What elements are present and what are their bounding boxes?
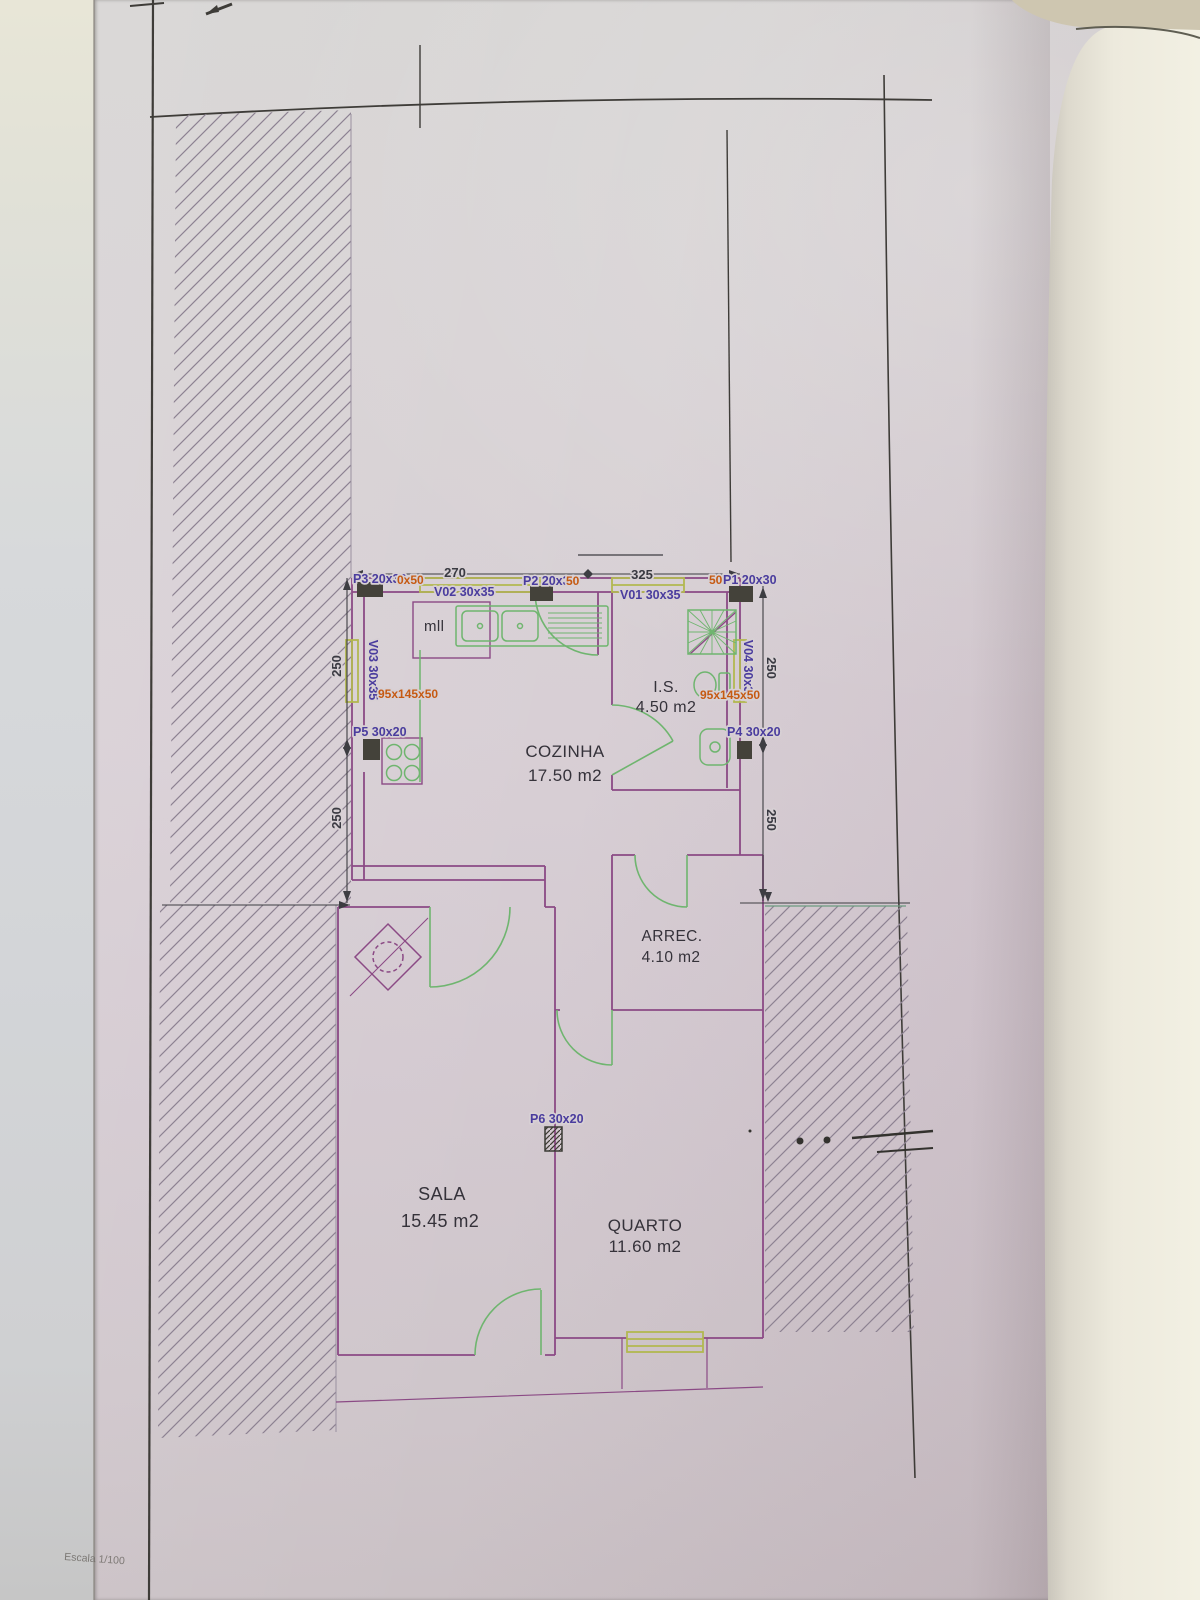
pillar-p1 [729,586,753,602]
floor-plan-drawing: P3 20x30 0x50 270 P2 20x30 50 325 50 P1 … [0,0,1200,1600]
dim-250-left-upper: 250 [329,655,344,677]
room-area-quarto: 11.60 m2 [609,1237,682,1256]
dim-270: 270 [444,565,466,580]
room-area-arrec: 4.10 m2 [642,949,701,966]
pillar-p6 [545,1127,562,1151]
hatch-right [765,906,914,1332]
kitchen-sink [456,606,608,646]
pillar-p2 [530,586,553,601]
top-edge-mark [130,3,164,6]
label-p6: P6 30x20 [530,1112,584,1126]
pillar-p5 [363,739,380,760]
label-p4: P4 30x20 [727,725,781,739]
pillar-p4 [737,741,752,759]
sala-walls [338,907,555,1355]
door-arc-sala [430,907,510,987]
dim-250-right-lower: 250 [764,809,779,831]
left-border-line [149,0,153,1600]
door-arc-quarto [557,1010,612,1065]
fireplace [350,918,428,996]
walls [336,578,763,1402]
room-area-is: 4.50 m2 [636,699,697,716]
label-v02: V02 30x35 [434,585,495,599]
label-p3-extra: 0x50 [397,573,424,587]
window-quarto [627,1332,703,1352]
dim-250-right-upper: 250 [764,657,779,679]
hatch-left-lower [158,905,336,1438]
page-curl [970,0,1200,1600]
door-arc-arrec [635,855,687,907]
room-label-cozinha: COZINHA [525,742,605,761]
room-area-cozinha: 17.50 m2 [528,766,602,785]
dim-250-left-lower: 250 [329,807,344,829]
label-p1-extra: 50 [709,573,723,587]
room-label-arrec: ARREC. [642,928,703,945]
mid-boundary-line [727,130,731,562]
room-label-sala: SALA [418,1184,466,1204]
dim-325: 325 [631,567,653,582]
label-p2-extra: 50 [566,574,580,588]
label-p5: P5 30x20 [353,725,407,739]
scale-note: Escala 1/100 [64,1551,126,1567]
label-v01: V01 30x35 [620,588,681,602]
dimension-arrows [339,569,772,909]
room-area-sala: 15.45 m2 [401,1211,479,1231]
photo-canvas: P3 20x30 0x50 270 P2 20x30 50 325 50 P1 … [0,0,1200,1600]
stove-burners [387,745,420,781]
label-counter-left: 95x145x50 [378,687,438,701]
kitchen-bottom-walls [352,866,545,907]
room-label-quarto: QUARTO [608,1216,683,1235]
room-label-is: I.S. [653,679,679,696]
hatch-left-upper [170,110,351,903]
note-mll: mll [424,618,444,635]
washbasin [700,729,730,765]
exterior-bottom-line [336,1338,763,1402]
label-counter-right: 95x145x50 [700,688,760,702]
door-arc-sala-exterior [475,1289,541,1355]
shower [688,610,736,654]
label-p1: P1 20x30 [723,573,777,587]
